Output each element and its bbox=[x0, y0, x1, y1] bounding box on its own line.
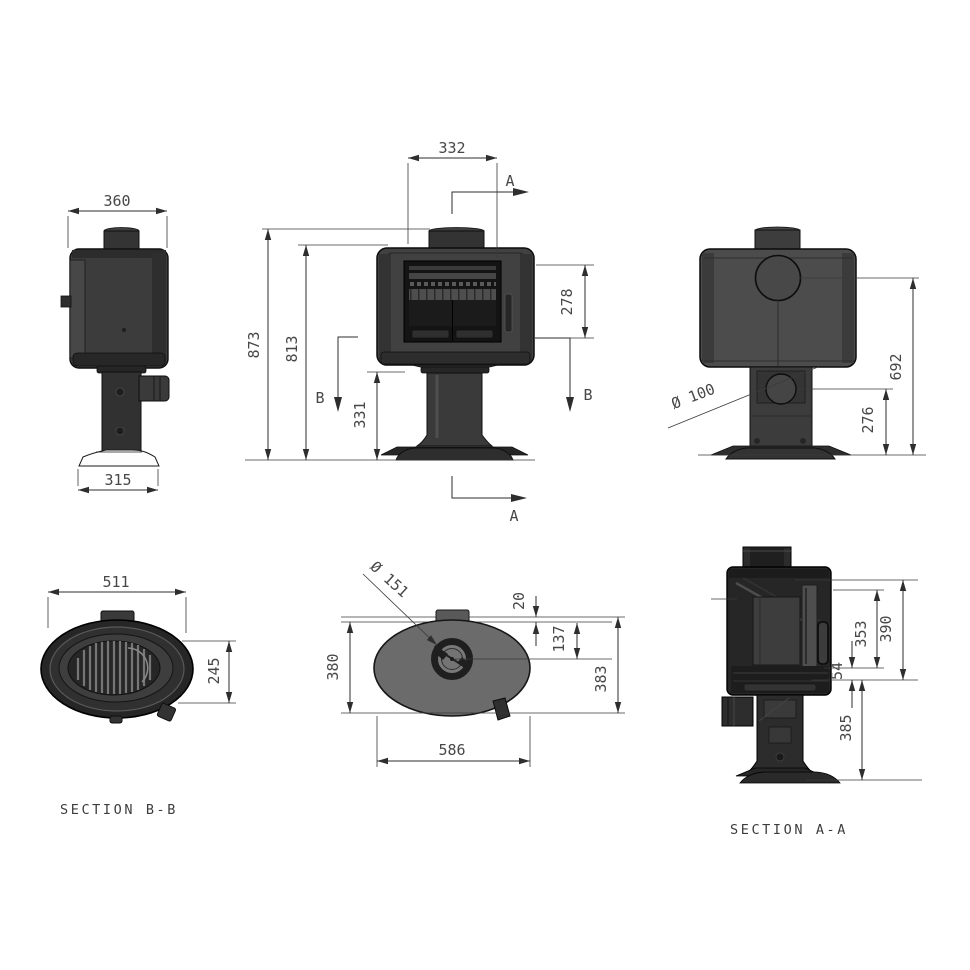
dim-text-20: 20 bbox=[510, 592, 528, 610]
dim-text-137: 137 bbox=[550, 625, 568, 652]
rear-air-inlet bbox=[766, 374, 796, 404]
technical-drawing-page: 360 315 bbox=[0, 0, 970, 970]
dim-top-total-depth: 383 bbox=[592, 617, 621, 713]
dim-text-380: 380 bbox=[324, 653, 342, 680]
dim-text-385: 385 bbox=[837, 714, 855, 741]
dim-aa-pedestal: 385 bbox=[837, 680, 865, 780]
dim-text-dia-100: Ø 100 bbox=[669, 380, 718, 413]
section-aa-title: SECTION A-A bbox=[730, 822, 848, 838]
dim-aa-gap: 54 bbox=[828, 641, 855, 708]
dim-text-390: 390 bbox=[877, 615, 895, 642]
dim-aa-firebox: 353 bbox=[852, 590, 880, 668]
door-handle-front bbox=[505, 294, 512, 332]
dim-front-glass-height: 278 bbox=[536, 265, 594, 338]
section-bb-view: 511 245 SECTION B-B bbox=[41, 573, 236, 818]
base-skirt-front bbox=[396, 448, 513, 460]
dim-text-dia-151: Ø 151 bbox=[367, 557, 413, 601]
door-handle-side bbox=[61, 296, 71, 307]
dim-top-collar-offset: 20 bbox=[510, 592, 539, 646]
dim-text-54: 54 bbox=[828, 662, 846, 680]
pedestal-front bbox=[417, 373, 492, 446]
section-cut-b-right: B bbox=[535, 338, 593, 412]
rear-flue-outlet bbox=[756, 256, 801, 301]
dim-aa-top: 390 bbox=[877, 580, 906, 680]
dim-text-315: 315 bbox=[104, 471, 131, 489]
dim-text-332: 332 bbox=[438, 139, 465, 157]
base-skirt-rear bbox=[726, 448, 835, 459]
cut-label-b-right: B bbox=[583, 386, 592, 404]
dim-text-873: 873 bbox=[245, 331, 263, 358]
cut-label-b-left: B bbox=[315, 389, 324, 407]
dim-text-586: 586 bbox=[438, 741, 465, 759]
side-view: 360 315 bbox=[61, 192, 169, 493]
dim-side-base-width: 315 bbox=[78, 469, 158, 493]
section-cut-a-top: A bbox=[452, 172, 529, 214]
cut-label-a-bottom: A bbox=[509, 507, 518, 525]
dim-text-383: 383 bbox=[592, 665, 610, 692]
section-aa-view: 390 353 54 385 SECTION A-A bbox=[711, 547, 922, 838]
dim-text-692: 692 bbox=[887, 353, 905, 380]
dim-text-813: 813 bbox=[283, 335, 301, 362]
dim-text-511: 511 bbox=[102, 573, 129, 591]
door-handle-section bbox=[818, 622, 828, 664]
section-cut-b-left: B bbox=[315, 337, 358, 412]
stove-dimension-drawing: 360 315 bbox=[0, 0, 970, 970]
cut-label-a-top: A bbox=[505, 172, 514, 190]
dim-text-353: 353 bbox=[852, 620, 870, 647]
dim-top-body-depth: 380 bbox=[324, 622, 353, 713]
rear-view: Ø 100 692 276 bbox=[668, 227, 926, 459]
dim-text-245: 245 bbox=[205, 657, 223, 684]
section-bb-title: SECTION B-B bbox=[60, 802, 178, 818]
front-view: 332 873 813 278 bbox=[245, 139, 594, 525]
dim-front-body-height: 813 bbox=[283, 245, 388, 460]
dim-text-360: 360 bbox=[103, 192, 130, 210]
top-view: Ø 151 380 20 137 3 bbox=[324, 557, 625, 767]
dim-text-276: 276 bbox=[859, 406, 877, 433]
air-stub-section bbox=[722, 697, 753, 726]
dim-top-width: 586 bbox=[377, 716, 530, 767]
section-cut-a-bottom: A bbox=[452, 476, 527, 525]
dim-text-278: 278 bbox=[558, 288, 576, 315]
dim-text-331: 331 bbox=[351, 401, 369, 428]
